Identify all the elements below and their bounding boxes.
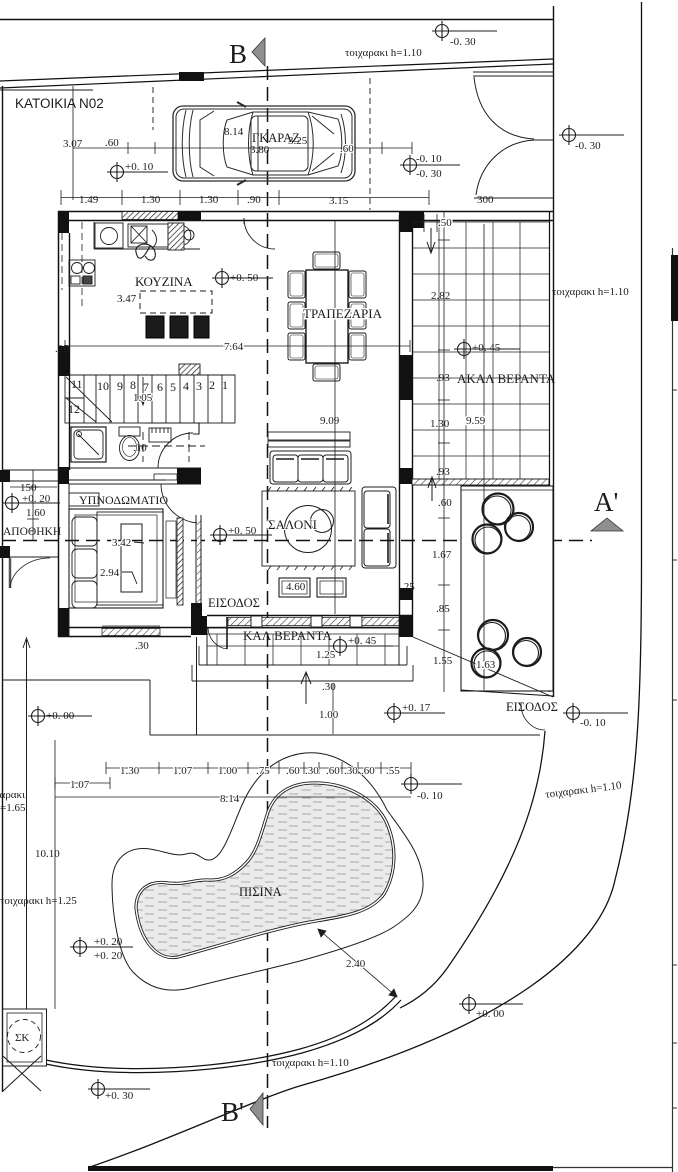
svg-text:.30: .30	[305, 765, 319, 777]
svg-text:1.25: 1.25	[316, 649, 336, 661]
svg-text:3.80: 3.80	[250, 144, 270, 156]
svg-text:ΠΙΣΙΝΑ: ΠΙΣΙΝΑ	[239, 885, 282, 899]
svg-text:ΣΚ: ΣΚ	[15, 1032, 29, 1044]
svg-text:τοιχαρακι h=1.10: τοιχαρακι h=1.10	[272, 1057, 349, 1069]
svg-text:4.60: 4.60	[286, 581, 306, 593]
svg-text:300: 300	[477, 194, 494, 206]
svg-text:ΚΑΛ ΒΕΡΑΝΤΑ: ΚΑΛ ΒΕΡΑΝΤΑ	[243, 628, 332, 643]
svg-text:8.14: 8.14	[220, 793, 240, 805]
svg-text:-0. 30: -0. 30	[450, 36, 476, 48]
svg-text:.60: .60	[361, 765, 375, 777]
svg-text:ΑΠΟΘΗΚΗ: ΑΠΟΘΗΚΗ	[3, 526, 61, 538]
svg-text:+0. 20: +0. 20	[22, 493, 51, 505]
svg-text:τοιχαρακι h=1.10: τοιχαρακι h=1.10	[552, 286, 629, 298]
svg-text:9.59: 9.59	[466, 415, 486, 427]
svg-text:3.42: 3.42	[112, 537, 131, 549]
svg-text:2.82: 2.82	[431, 290, 450, 302]
svg-text:1.00: 1.00	[319, 709, 339, 721]
svg-text:.93: .93	[436, 466, 450, 478]
svg-text:8.14: 8.14	[224, 126, 244, 138]
svg-text:ΕΙΣΟΔΟΣ: ΕΙΣΟΔΟΣ	[208, 596, 260, 610]
svg-text:=1.65: =1.65	[0, 802, 26, 814]
svg-text:+0. 00: +0. 00	[46, 710, 75, 722]
svg-text:+0. 00: +0. 00	[476, 1008, 505, 1020]
svg-text:ΣΑΛΟΝΙ: ΣΑΛΟΝΙ	[268, 517, 317, 532]
svg-text:3: 3	[196, 379, 202, 393]
svg-text:1.30: 1.30	[199, 194, 219, 206]
svg-text:+0. 50: +0. 50	[228, 525, 257, 537]
svg-text:+0. 45: +0. 45	[348, 635, 377, 647]
svg-text:+0. 20: +0. 20	[94, 950, 123, 962]
svg-text:-0. 30: -0. 30	[416, 168, 442, 180]
svg-text:.30: .30	[344, 765, 358, 777]
svg-text:12: 12	[68, 402, 80, 416]
svg-text:B': B'	[221, 1097, 244, 1127]
svg-text:.90: .90	[247, 194, 261, 206]
svg-text:.60: .60	[438, 497, 452, 509]
svg-text:ΑΚΑΛ ΒΕΡΑΝΤΑ: ΑΚΑΛ ΒΕΡΑΝΤΑ	[457, 371, 556, 386]
svg-text:.30: .30	[135, 640, 149, 652]
svg-text:3.15: 3.15	[329, 195, 349, 207]
svg-text:τοιχαρακι h=1.10: τοιχαρακι h=1.10	[345, 47, 422, 59]
svg-text:.60: .60	[326, 765, 340, 777]
svg-text:ΚΑΤΟΙΚΙΑ N02: ΚΑΤΟΙΚΙΑ N02	[15, 96, 104, 111]
svg-text:1.60: 1.60	[26, 507, 46, 519]
svg-text:.30: .30	[322, 681, 336, 693]
svg-text:.55: .55	[386, 765, 400, 777]
svg-text:1.07: 1.07	[70, 779, 90, 791]
svg-text:3.47: 3.47	[117, 293, 137, 305]
svg-text:1.67: 1.67	[432, 549, 452, 561]
svg-text:-0. 10: -0. 10	[416, 153, 442, 165]
svg-text:1.30: 1.30	[120, 765, 140, 777]
svg-text:A': A'	[594, 487, 618, 517]
svg-text:τοιχαρακι h=1.10: τοιχαρακι h=1.10	[545, 780, 623, 801]
svg-text:+0. 30: +0. 30	[105, 1090, 134, 1102]
svg-text:1.55: 1.55	[433, 655, 453, 667]
svg-text:8: 8	[130, 378, 136, 392]
svg-text:9.09: 9.09	[320, 415, 340, 427]
svg-text:.85: .85	[436, 603, 450, 615]
svg-text:6: 6	[157, 380, 163, 394]
svg-text:+0. 50: +0. 50	[230, 272, 259, 284]
svg-text:.60: .60	[340, 143, 354, 155]
svg-text:1.00: 1.00	[218, 765, 238, 777]
svg-text:2: 2	[209, 378, 215, 392]
svg-text:.25: .25	[55, 343, 69, 355]
svg-text:1.49: 1.49	[79, 194, 99, 206]
svg-text:.60: .60	[286, 765, 300, 777]
svg-text:3.25: 3.25	[288, 135, 308, 147]
svg-text:B: B	[229, 39, 247, 69]
svg-text:ΤΡΑΠΕΖΑΡΙΑ: ΤΡΑΠΕΖΑΡΙΑ	[303, 306, 383, 321]
svg-text:+0. 17: +0. 17	[402, 702, 431, 714]
svg-text:1.30: 1.30	[430, 418, 450, 430]
svg-text:11: 11	[71, 377, 83, 391]
svg-text:.25: .25	[401, 581, 415, 593]
svg-text:2.94: 2.94	[100, 567, 120, 579]
svg-text:.60: .60	[105, 137, 119, 149]
svg-text:.93: .93	[436, 372, 450, 384]
svg-text:.10: .10	[133, 442, 147, 454]
svg-text:ΕΙΣΟΔΟΣ: ΕΙΣΟΔΟΣ	[506, 700, 558, 714]
svg-text:1.05: 1.05	[133, 392, 153, 404]
svg-text:1.30: 1.30	[141, 194, 161, 206]
svg-text:-0. 10: -0. 10	[417, 790, 443, 802]
svg-text:τοιχαρακι h=1.25: τοιχαρακι h=1.25	[0, 895, 77, 907]
svg-text:+0. 20: +0. 20	[94, 936, 123, 948]
svg-text:τοιχαρακι: τοιχαρακι	[0, 789, 25, 801]
svg-text:3.07: 3.07	[63, 138, 83, 150]
svg-text:10: 10	[97, 379, 109, 393]
svg-text:5: 5	[170, 380, 176, 394]
svg-text:ΚΟΥΖΙΝΑ: ΚΟΥΖΙΝΑ	[135, 274, 193, 289]
svg-text:7.64: 7.64	[224, 341, 244, 353]
svg-text:1.63: 1.63	[476, 659, 496, 671]
svg-text:1: 1	[222, 378, 228, 392]
svg-text:+0. 45: +0. 45	[472, 342, 501, 354]
svg-text:4: 4	[183, 379, 189, 393]
svg-text:10.10: 10.10	[35, 848, 60, 860]
svg-text:ΥΠΝΟΔΩΜΑΤΙΟ: ΥΠΝΟΔΩΜΑΤΙΟ	[79, 493, 168, 507]
svg-text:1.07: 1.07	[173, 765, 193, 777]
svg-text:+0. 10: +0. 10	[125, 161, 154, 173]
svg-text:.50: .50	[438, 217, 452, 229]
svg-text:-0. 10: -0. 10	[580, 717, 606, 729]
svg-text:-0. 30: -0. 30	[575, 140, 601, 152]
svg-text:9: 9	[117, 379, 123, 393]
svg-text:.75: .75	[256, 765, 270, 777]
svg-text:2.40: 2.40	[346, 958, 366, 970]
